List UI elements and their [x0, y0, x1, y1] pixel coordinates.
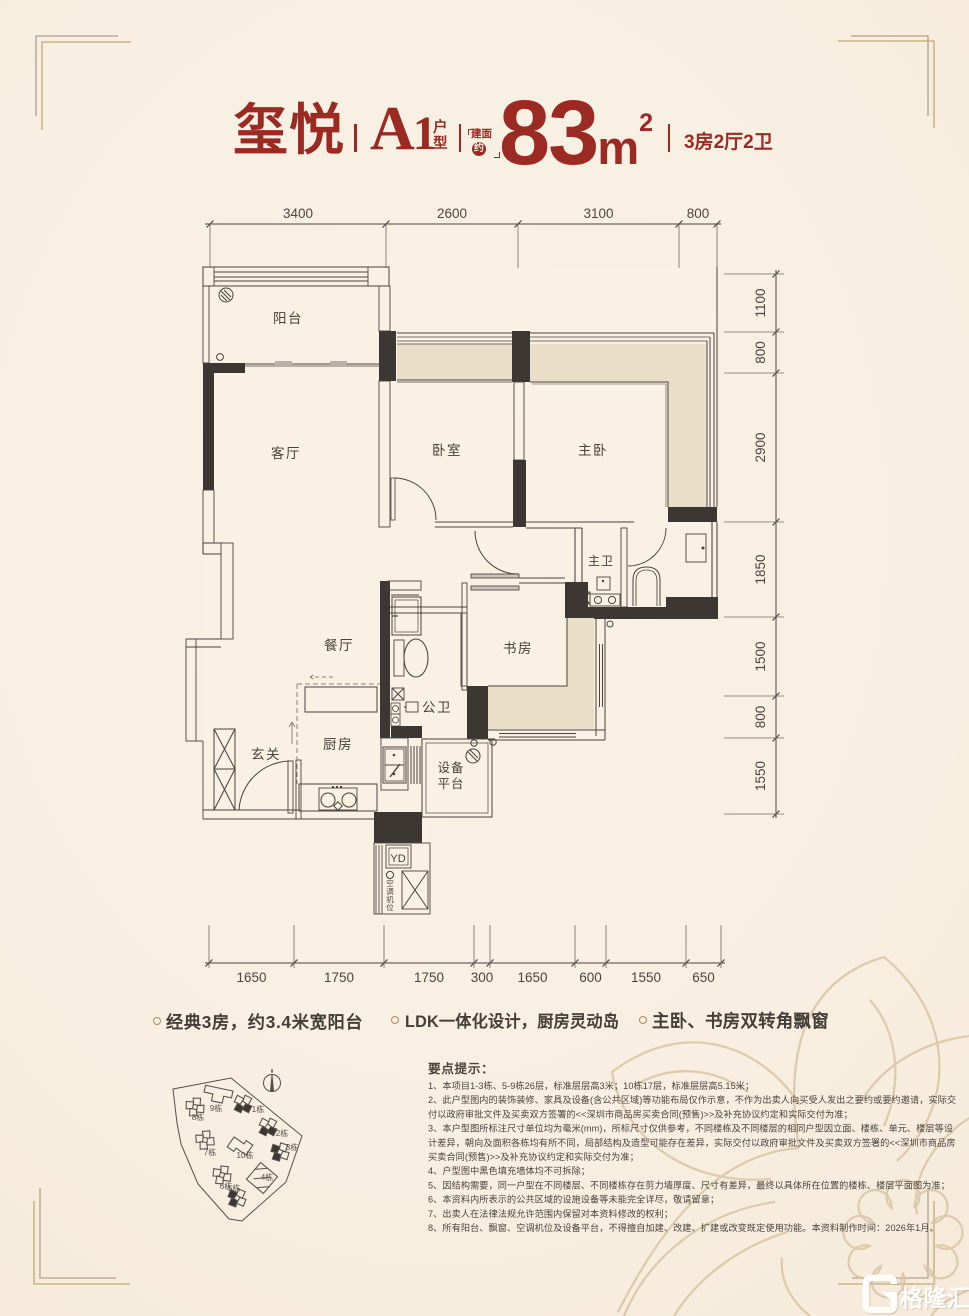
svg-text:平台: 平台 [437, 776, 464, 791]
svg-text:餐厅: 餐厅 [324, 638, 354, 653]
svg-text:1650: 1650 [517, 970, 547, 985]
svg-text:2栋: 2栋 [276, 1128, 288, 1138]
svg-text:10栋: 10栋 [237, 1150, 254, 1160]
svg-text:1550: 1550 [753, 761, 768, 791]
svg-text:1500: 1500 [753, 641, 768, 671]
svg-text:阳台: 阳台 [273, 311, 303, 326]
svg-text:2600: 2600 [437, 206, 467, 221]
svg-text:5栋: 5栋 [228, 1183, 240, 1193]
svg-text:800: 800 [687, 206, 710, 221]
svg-text:1750: 1750 [414, 970, 444, 985]
svg-text:4栋: 4栋 [261, 1172, 273, 1182]
svg-text:800: 800 [753, 341, 768, 364]
svg-text:650: 650 [692, 970, 715, 985]
svg-text:300: 300 [471, 970, 494, 985]
svg-text:书房: 书房 [503, 641, 533, 656]
svg-text:厨房: 厨房 [323, 737, 353, 752]
svg-text:1750: 1750 [324, 970, 354, 985]
svg-text:600: 600 [579, 970, 602, 985]
svg-text:主卧: 主卧 [578, 443, 608, 458]
svg-text:8栋: 8栋 [192, 1112, 204, 1122]
svg-text:1栋: 1栋 [252, 1104, 264, 1114]
svg-text:7栋: 7栋 [204, 1147, 216, 1157]
svg-text:主卫: 主卫 [588, 554, 614, 568]
svg-text:3100: 3100 [583, 206, 613, 221]
svg-text:设备: 设备 [437, 760, 464, 775]
svg-text:3400: 3400 [283, 206, 313, 221]
svg-text:格隆汇: 格隆汇 [900, 1285, 969, 1311]
svg-text:1850: 1850 [753, 554, 768, 584]
svg-text:卧室: 卧室 [432, 442, 462, 458]
svg-text:公卫: 公卫 [422, 700, 452, 715]
svg-text:YD: YD [390, 853, 405, 865]
svg-text:客厅: 客厅 [271, 445, 301, 461]
svg-text:9栋: 9栋 [210, 1103, 222, 1113]
svg-text:1550: 1550 [631, 970, 661, 985]
svg-text:2900: 2900 [753, 432, 768, 462]
svg-text:1100: 1100 [753, 288, 768, 317]
svg-text:3栋: 3栋 [286, 1142, 298, 1152]
svg-text:玄关: 玄关 [251, 746, 281, 762]
svg-text:1650: 1650 [236, 970, 266, 985]
svg-text:800: 800 [753, 706, 768, 729]
svg-text:位: 位 [386, 902, 394, 912]
